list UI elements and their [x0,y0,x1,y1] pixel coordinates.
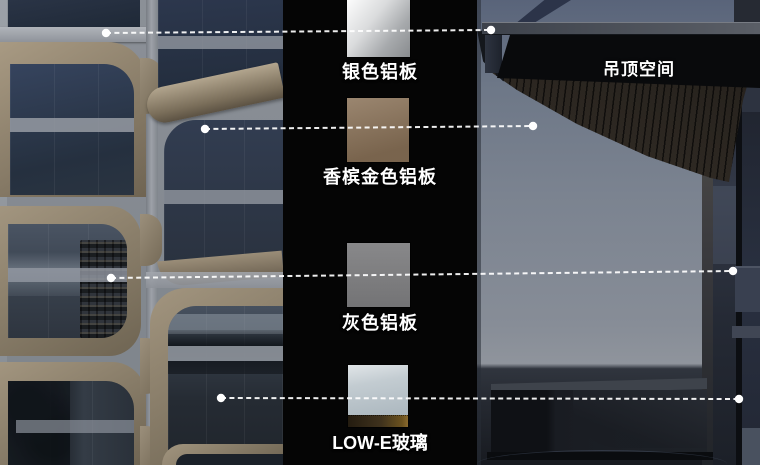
render-left-edge [477,0,481,465]
material-legend-strip: 银色铝板 香槟金色铝板 灰色铝板 LOW-E玻璃 [283,0,477,465]
silver-facade-band [10,118,134,132]
glass-pane [8,381,134,465]
roof-beam [482,22,760,35]
material-swatch-silver-aluminum [347,0,410,57]
silver-facade-band [16,420,134,433]
material-swatch-gray-aluminum [347,243,410,307]
material-label: 灰色铝板 [283,309,477,335]
glass-pane [168,306,283,465]
bronze-frame-edge [140,214,162,266]
silver-facade-band [0,27,148,42]
glass-pane [8,0,140,27]
material-swatch-champagne-gold-aluminum [347,98,409,162]
silver-facade-band [146,272,283,288]
equipment-box-highlight [573,390,707,448]
material-swatch-low-e-glass [348,365,408,427]
glass-frame-strip [348,415,408,427]
section-corner-panel [742,428,760,465]
glass-pane [176,454,283,465]
silver-facade-band [158,36,283,49]
facade-photo [0,0,283,465]
ceiling-void-label: 吊顶空间 [573,55,705,80]
facade-material-callout-diagram: 银色铝板 香槟金色铝板 灰色铝板 LOW-E玻璃 吊顶空间 [0,0,760,465]
structure-top-right [734,0,760,24]
material-label: 香槟金色铝板 [283,163,477,189]
silver-facade-band [168,346,283,361]
mullion-highlight [713,186,736,264]
city-building-reflection [80,240,127,338]
material-label: LOW-E玻璃 [283,429,477,455]
section-ledge [732,326,760,338]
silver-facade-band [164,190,283,204]
material-label: 银色铝板 [283,58,477,84]
silver-facade-band [8,268,127,282]
facade-section-render: 吊顶空间 [477,0,760,465]
section-bracket [735,266,760,312]
